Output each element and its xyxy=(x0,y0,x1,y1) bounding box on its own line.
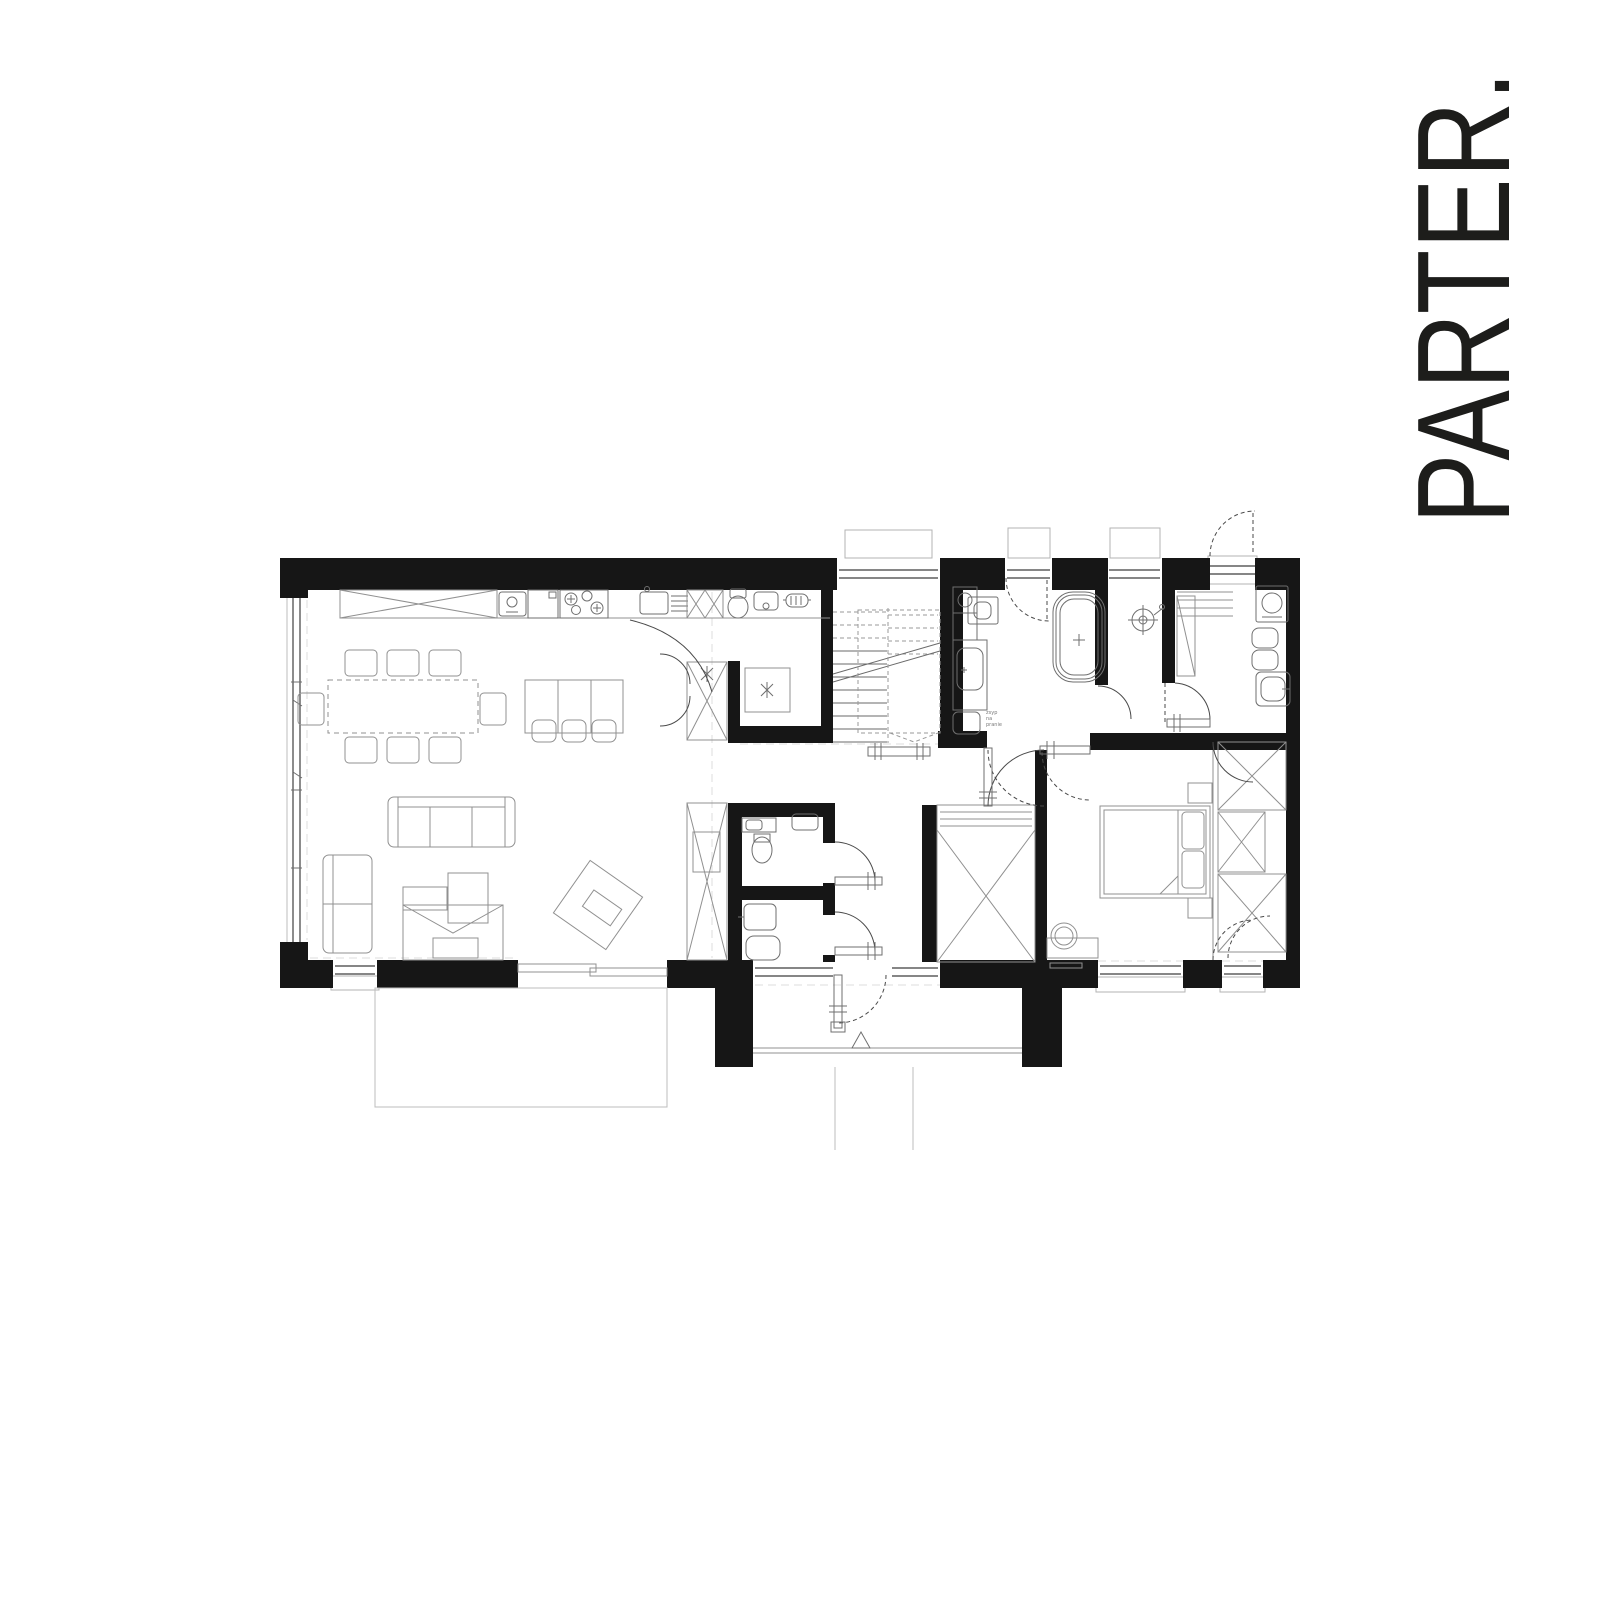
shower-wc-door-leaf xyxy=(835,942,882,960)
radiator-icon xyxy=(783,594,811,607)
bathroom-door-leaf xyxy=(979,748,997,806)
bedroom xyxy=(1047,742,1286,968)
nightstand xyxy=(1188,783,1212,803)
side-table xyxy=(448,873,488,923)
utility-room xyxy=(1177,586,1290,706)
kitchen-tall-cabinet xyxy=(340,590,497,618)
wardrobe-wall xyxy=(1213,742,1286,960)
shower-room xyxy=(1128,605,1165,636)
terrace-sliding-door xyxy=(518,964,667,976)
shower-wc-room xyxy=(738,904,780,960)
bedroom-door-leaf xyxy=(1040,741,1090,759)
nightstand xyxy=(1188,898,1212,918)
entrance-marker-triangle xyxy=(852,1032,870,1048)
double-bed xyxy=(1100,806,1210,898)
hall-wardrobe-column xyxy=(687,803,727,960)
coffee-table xyxy=(403,887,447,910)
staircase xyxy=(833,608,940,743)
hall-closet xyxy=(937,805,1035,962)
entrance-door-leaf xyxy=(829,975,847,1032)
dining-table xyxy=(298,650,506,763)
laundry-basket xyxy=(1252,628,1278,648)
washbasin-icon xyxy=(754,592,778,610)
laundry-basket xyxy=(1252,650,1278,670)
coffee-machine-icon xyxy=(499,592,526,616)
kitchen-island xyxy=(525,680,623,742)
floor-plan-drawing: zsyp na pranie xyxy=(0,0,1600,1600)
oven-icon xyxy=(528,590,558,618)
lounge-chair xyxy=(553,860,642,949)
kitchen-sink-icon xyxy=(640,587,688,615)
svg-text:pranie: pranie xyxy=(986,722,1002,728)
wall-hung-toilet xyxy=(968,597,998,624)
living-room xyxy=(323,797,727,960)
kitchen-crossed-cabinet xyxy=(687,590,723,618)
laundry-chute-label: zsyp na pranie xyxy=(986,710,1002,728)
tv-sideboard xyxy=(403,905,503,960)
washing-machine-icon xyxy=(1256,586,1288,622)
entrance-porch xyxy=(753,1032,1022,1150)
utility-sink-icon xyxy=(1256,672,1290,706)
left-glazed-wall xyxy=(287,598,302,942)
sofa xyxy=(388,797,515,847)
windows xyxy=(287,566,1261,976)
wc-door-leaf xyxy=(835,872,882,890)
loveseat xyxy=(323,855,372,953)
hall-radiator xyxy=(868,743,930,760)
floor-plan-page: PARTER. xyxy=(0,0,1600,1600)
reference-guides xyxy=(307,592,1263,985)
utility-shower-door-leaf xyxy=(1167,714,1210,732)
pantry-nook xyxy=(630,620,790,740)
toilet-icon xyxy=(728,589,748,618)
bathroom: zsyp na pranie xyxy=(953,587,1105,734)
wc-room xyxy=(742,814,818,863)
terrace xyxy=(375,988,667,1107)
kitchen xyxy=(340,587,830,619)
cooktop-icon xyxy=(560,590,608,618)
